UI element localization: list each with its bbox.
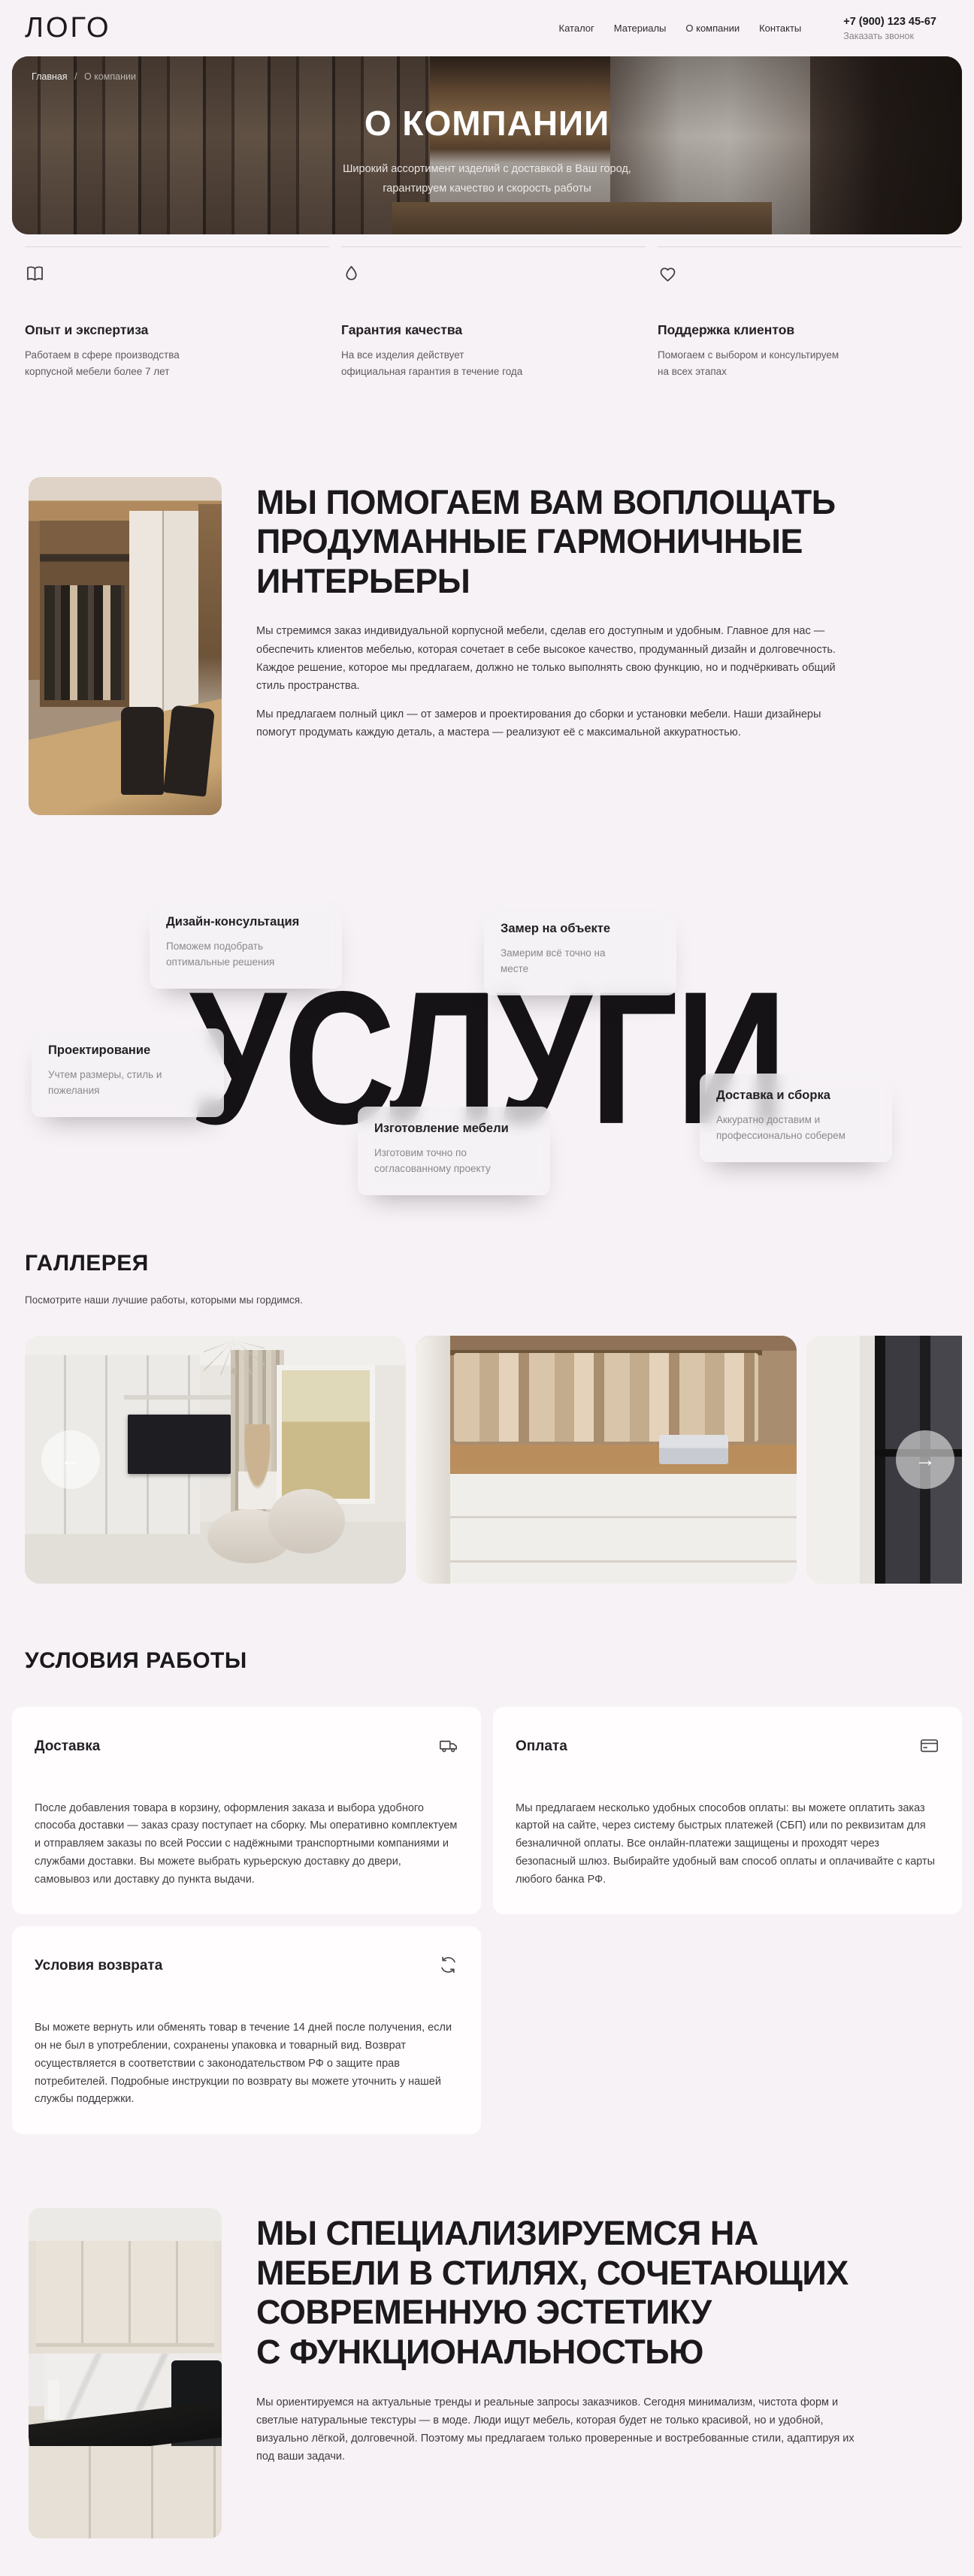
breadcrumb-current: О компании <box>84 71 136 82</box>
feature-experience: Опыт и экспертиза Работаем в сфере произ… <box>25 246 329 403</box>
feature-title: Опыт и экспертиза <box>25 322 322 338</box>
refresh-icon <box>438 1955 458 1979</box>
nav-materials[interactable]: Материалы <box>614 23 667 34</box>
specialization-heading: МЫ СПЕЦИАЛИЗИРУЕМСЯ НА МЕБЕЛИ В СТИЛЯХ, … <box>256 2214 858 2372</box>
page-title: О КОМПАНИИ <box>364 103 610 143</box>
hero-subtitle: Широкий ассортимент изделий с доставкой … <box>343 160 631 198</box>
feature-quality: Гарантия качества На все изделия действу… <box>341 246 646 403</box>
service-card-measure: Замер на объекте Замерим всё точно на ме… <box>484 907 676 995</box>
conditions-title: УСЛОВИЯ РАБОТЫ <box>25 1648 962 1674</box>
shield-icon <box>341 264 361 288</box>
service-card-design: Дизайн-консультация Поможем подобрать оп… <box>150 900 342 989</box>
phone-block: +7 (900) 123 45-67 Заказать звонок <box>843 16 936 41</box>
conditions-grid: Доставка После добавления товара в корзи… <box>12 1707 962 2135</box>
condition-text: После добавления товара в корзину, оформ… <box>35 1800 458 1889</box>
nav-catalog[interactable]: Каталог <box>559 23 594 34</box>
gallery-prev-button[interactable]: ← <box>41 1430 100 1489</box>
service-text: Аккуратно доставим и профессионально соб… <box>716 1112 851 1144</box>
arrow-left-icon: ← <box>60 1448 81 1472</box>
service-text: Поможем подобрать оптимальные решения <box>166 938 301 971</box>
gallery-next-button[interactable]: → <box>896 1430 954 1489</box>
feature-text: Помогаем с выбором и консультируем на вс… <box>658 347 845 381</box>
features-row: Опыт и экспертиза Работаем в сфере произ… <box>25 246 962 403</box>
condition-text: Мы предлагаем несколько удобных способов… <box>516 1800 939 1889</box>
feature-support: Поддержка клиентов Помогаем с выбором и … <box>658 246 962 403</box>
hero-banner: Главная / О компании О КОМПАНИИ Широкий … <box>12 56 962 234</box>
truck-icon <box>438 1735 458 1759</box>
about-heading: МЫ ПОМОГАЕМ ВАМ ВОПЛОЩАТЬ ПРОДУМАННЫЕ ГА… <box>256 483 858 602</box>
arrow-right-icon: → <box>915 1448 936 1472</box>
service-title: Доставка и сборка <box>716 1089 876 1103</box>
breadcrumb-home[interactable]: Главная <box>32 71 68 82</box>
services-section: УСЛУГИ Дизайн-консультация Поможем подоб… <box>0 860 974 1206</box>
phone-number[interactable]: +7 (900) 123 45-67 <box>843 16 936 28</box>
about-photo <box>29 477 222 815</box>
heart-icon <box>658 264 678 288</box>
credit-card-icon <box>919 1735 939 1759</box>
logo[interactable]: ЛОГО <box>25 12 111 44</box>
specialization-paragraph: Мы ориентируемся на актуальные тренды и … <box>256 2393 858 2466</box>
breadcrumb: Главная / О компании <box>32 71 136 82</box>
service-title: Изготовление мебели <box>374 1122 534 1136</box>
service-title: Проектирование <box>48 1043 207 1058</box>
service-title: Замер на объекте <box>501 922 660 936</box>
gallery-photo-wardrobe <box>416 1336 797 1584</box>
service-text: Изготовим точно по согласованному проект… <box>374 1145 510 1177</box>
service-title: Дизайн-консультация <box>166 915 325 929</box>
condition-card-returns: Условия возврата Вы можете вернуть или о… <box>12 1926 481 2134</box>
condition-card-payment: Оплата Мы предлагаем несколько удобных с… <box>493 1707 962 1915</box>
site-header: ЛОГО Каталог Материалы О компании Контак… <box>0 0 974 56</box>
service-text: Замерим всё точно на месте <box>501 945 636 977</box>
header-right: Каталог Материалы О компании Контакты +7… <box>559 16 936 41</box>
specialization-section: МЫ СПЕЦИАЛИЗИРУЕМСЯ НА МЕБЕЛИ В СТИЛЯХ, … <box>29 2208 962 2538</box>
book-icon <box>25 264 45 288</box>
about-section: МЫ ПОМОГАЕМ ВАМ ВОПЛОЩАТЬ ПРОДУМАННЫЕ ГА… <box>29 477 962 815</box>
about-paragraph-1: Мы стремимся заказ индивидуальной корпус… <box>256 622 858 694</box>
nav-about[interactable]: О компании <box>685 23 740 34</box>
specialization-paragraphs: Мы ориентируемся на актуальные тренды и … <box>256 2393 858 2466</box>
condition-title: Условия возврата <box>35 1958 458 1974</box>
specialization-photo <box>29 2208 222 2538</box>
condition-card-delivery: Доставка После добавления товара в корзи… <box>12 1707 481 1915</box>
callback-link[interactable]: Заказать звонок <box>843 31 936 41</box>
condition-title: Доставка <box>35 1738 458 1755</box>
main-nav: Каталог Материалы О компании Контакты <box>559 23 802 34</box>
feature-title: Поддержка клиентов <box>658 322 954 338</box>
feature-text: Работаем в сфере производства корпусной … <box>25 347 213 381</box>
feature-title: Гарантия качества <box>341 322 638 338</box>
condition-title: Оплата <box>516 1738 939 1755</box>
feature-text: На все изделия действует официальная гар… <box>341 347 529 381</box>
breadcrumb-separator: / <box>74 71 77 82</box>
gallery-title: ГАЛЛЕРЕЯ <box>25 1251 962 1276</box>
condition-text: Вы можете вернуть или обменять товар в т… <box>35 2019 458 2109</box>
about-paragraph-2: Мы предлагаем полный цикл — от замеров и… <box>256 705 858 741</box>
service-card-project: Проектирование Учтем размеры, стиль и по… <box>32 1028 224 1117</box>
gallery-carousel: ← → <box>25 1336 962 1584</box>
service-card-production: Изготовление мебели Изготовим точно по с… <box>358 1107 550 1195</box>
about-paragraphs: Мы стремимся заказ индивидуальной корпус… <box>256 622 858 741</box>
service-text: Учтем размеры, стиль и пожелания <box>48 1067 183 1099</box>
conditions-empty-cell <box>493 1926 962 2134</box>
gallery-subtitle: Посмотрите наши лучшие работы, которыми … <box>25 1294 962 1306</box>
service-card-delivery: Доставка и сборка Аккуратно доставим и п… <box>700 1074 892 1162</box>
nav-contacts[interactable]: Контакты <box>759 23 801 34</box>
